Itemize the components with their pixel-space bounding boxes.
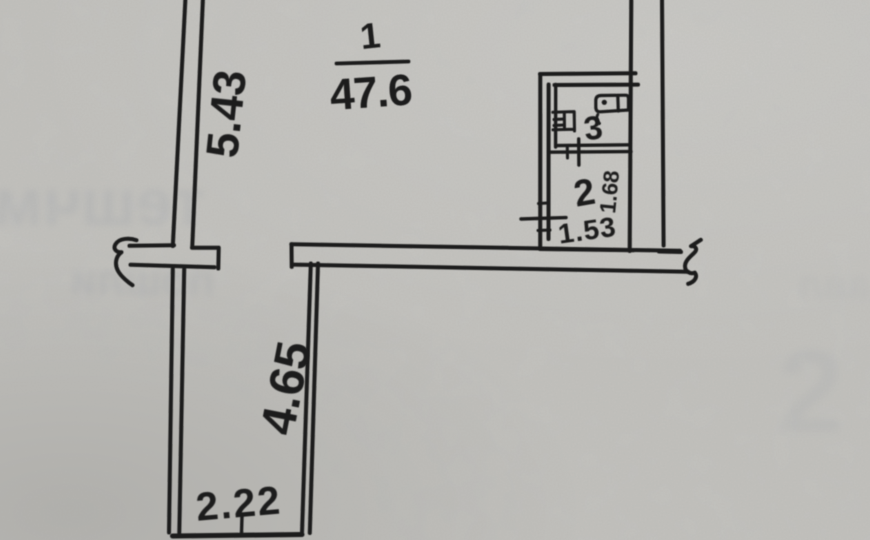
svg-text:47.6: 47.6 [328, 66, 413, 121]
svg-text:авл: авл [798, 263, 870, 307]
svg-text:2: 2 [778, 326, 844, 458]
svg-text:5.43: 5.43 [196, 68, 256, 160]
svg-text:1: 1 [358, 14, 382, 57]
svg-text:2.22: 2.22 [194, 478, 283, 529]
svg-text:1.68: 1.68 [595, 169, 624, 214]
